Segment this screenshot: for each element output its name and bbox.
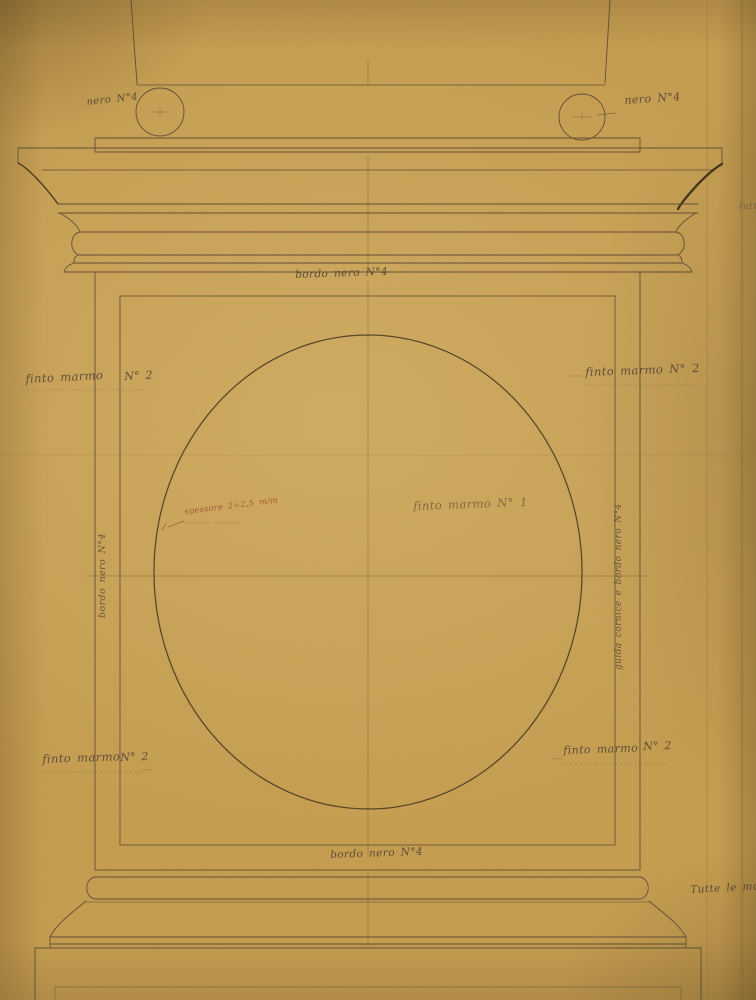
- note-num-bottom-right: N° 2: [643, 739, 672, 753]
- drawing-sheet: nero N°4 nero N°4 bordo nero N°4 finto m…: [0, 0, 756, 1000]
- note-num-top-left: N° 2: [124, 369, 153, 383]
- note-finto-marmo-bottom-right: finto marmo: [563, 741, 638, 757]
- note-guida-right-vertical: guida cornice e bordo nero N°4: [614, 503, 624, 670]
- note-bordo-left-vertical: bordo nero N°4: [97, 533, 108, 618]
- note-edge-right: tutt: [739, 202, 756, 212]
- note-finto-marmo-bottom-left: finto marmo: [42, 749, 120, 766]
- note-num-bottom-left: N° 2: [120, 750, 149, 764]
